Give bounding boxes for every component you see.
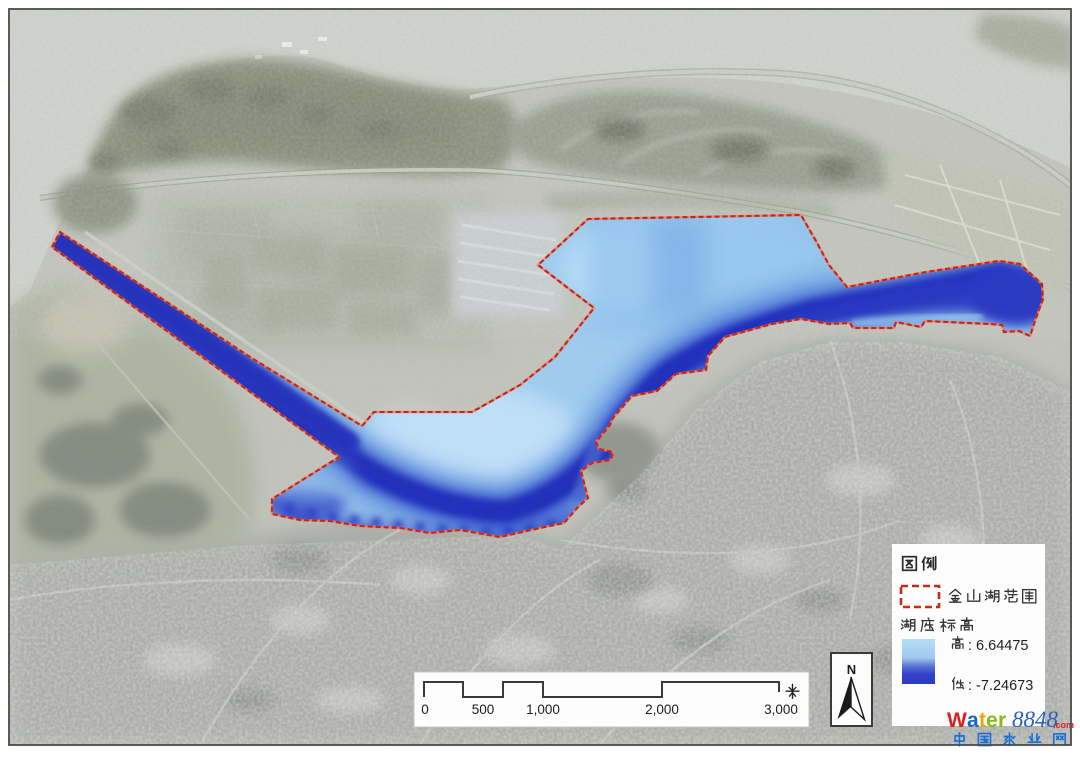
svg-text:: 6.64475: : 6.64475 <box>968 638 1028 654</box>
svg-text:W: W <box>947 709 967 732</box>
svg-text:500: 500 <box>472 702 495 717</box>
svg-text:e: e <box>986 709 998 732</box>
svg-text:3,000: 3,000 <box>764 702 798 717</box>
svg-text:1,000: 1,000 <box>526 702 560 717</box>
svg-text:: -7.24673: : -7.24673 <box>968 678 1033 694</box>
svg-text:r: r <box>998 709 1006 732</box>
svg-text:2,000: 2,000 <box>645 702 679 717</box>
svg-text:0: 0 <box>421 702 429 717</box>
svg-text:8848: 8848 <box>1012 707 1059 732</box>
svg-text:a: a <box>967 709 979 732</box>
svg-text:t: t <box>979 709 986 732</box>
svg-text:N: N <box>847 662 856 677</box>
